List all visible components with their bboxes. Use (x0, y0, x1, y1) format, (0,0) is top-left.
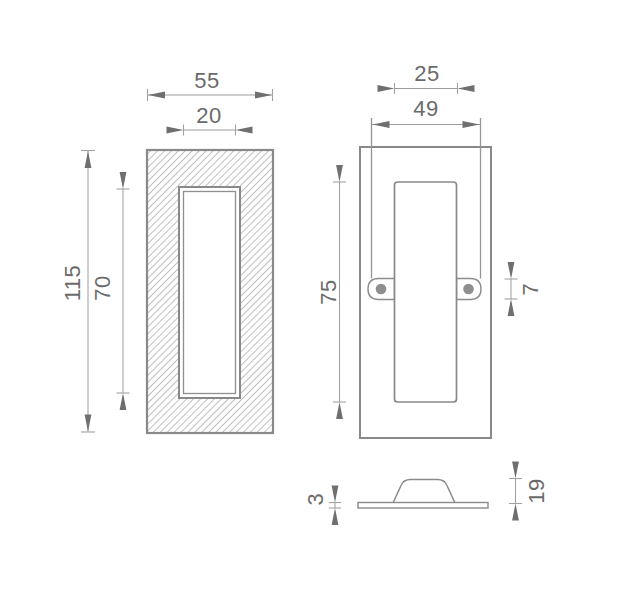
recess-outer-rim (179, 187, 240, 398)
dim-label-19: 19 (524, 478, 549, 503)
dim-label-55: 55 (194, 68, 219, 93)
screw-hole-left (376, 284, 387, 295)
dim-label-75: 75 (316, 279, 341, 304)
page-background (0, 0, 643, 614)
dim-label-3: 3 (303, 493, 328, 506)
dim-label-49: 49 (413, 96, 438, 121)
recess-cup (395, 182, 457, 402)
dim-label-7: 7 (518, 283, 543, 296)
technical-drawing-canvas: 55 20 115 70 (0, 0, 643, 614)
plate-profile (358, 503, 488, 509)
screw-hole-right (463, 284, 474, 295)
cup-dome-profile (393, 480, 455, 504)
dim-label-25: 25 (414, 61, 439, 86)
dim-label-115: 115 (60, 265, 85, 302)
dim-label-20: 20 (196, 103, 221, 128)
dim-label-70: 70 (90, 275, 115, 300)
drawing-page: 55 20 115 70 (0, 0, 643, 614)
